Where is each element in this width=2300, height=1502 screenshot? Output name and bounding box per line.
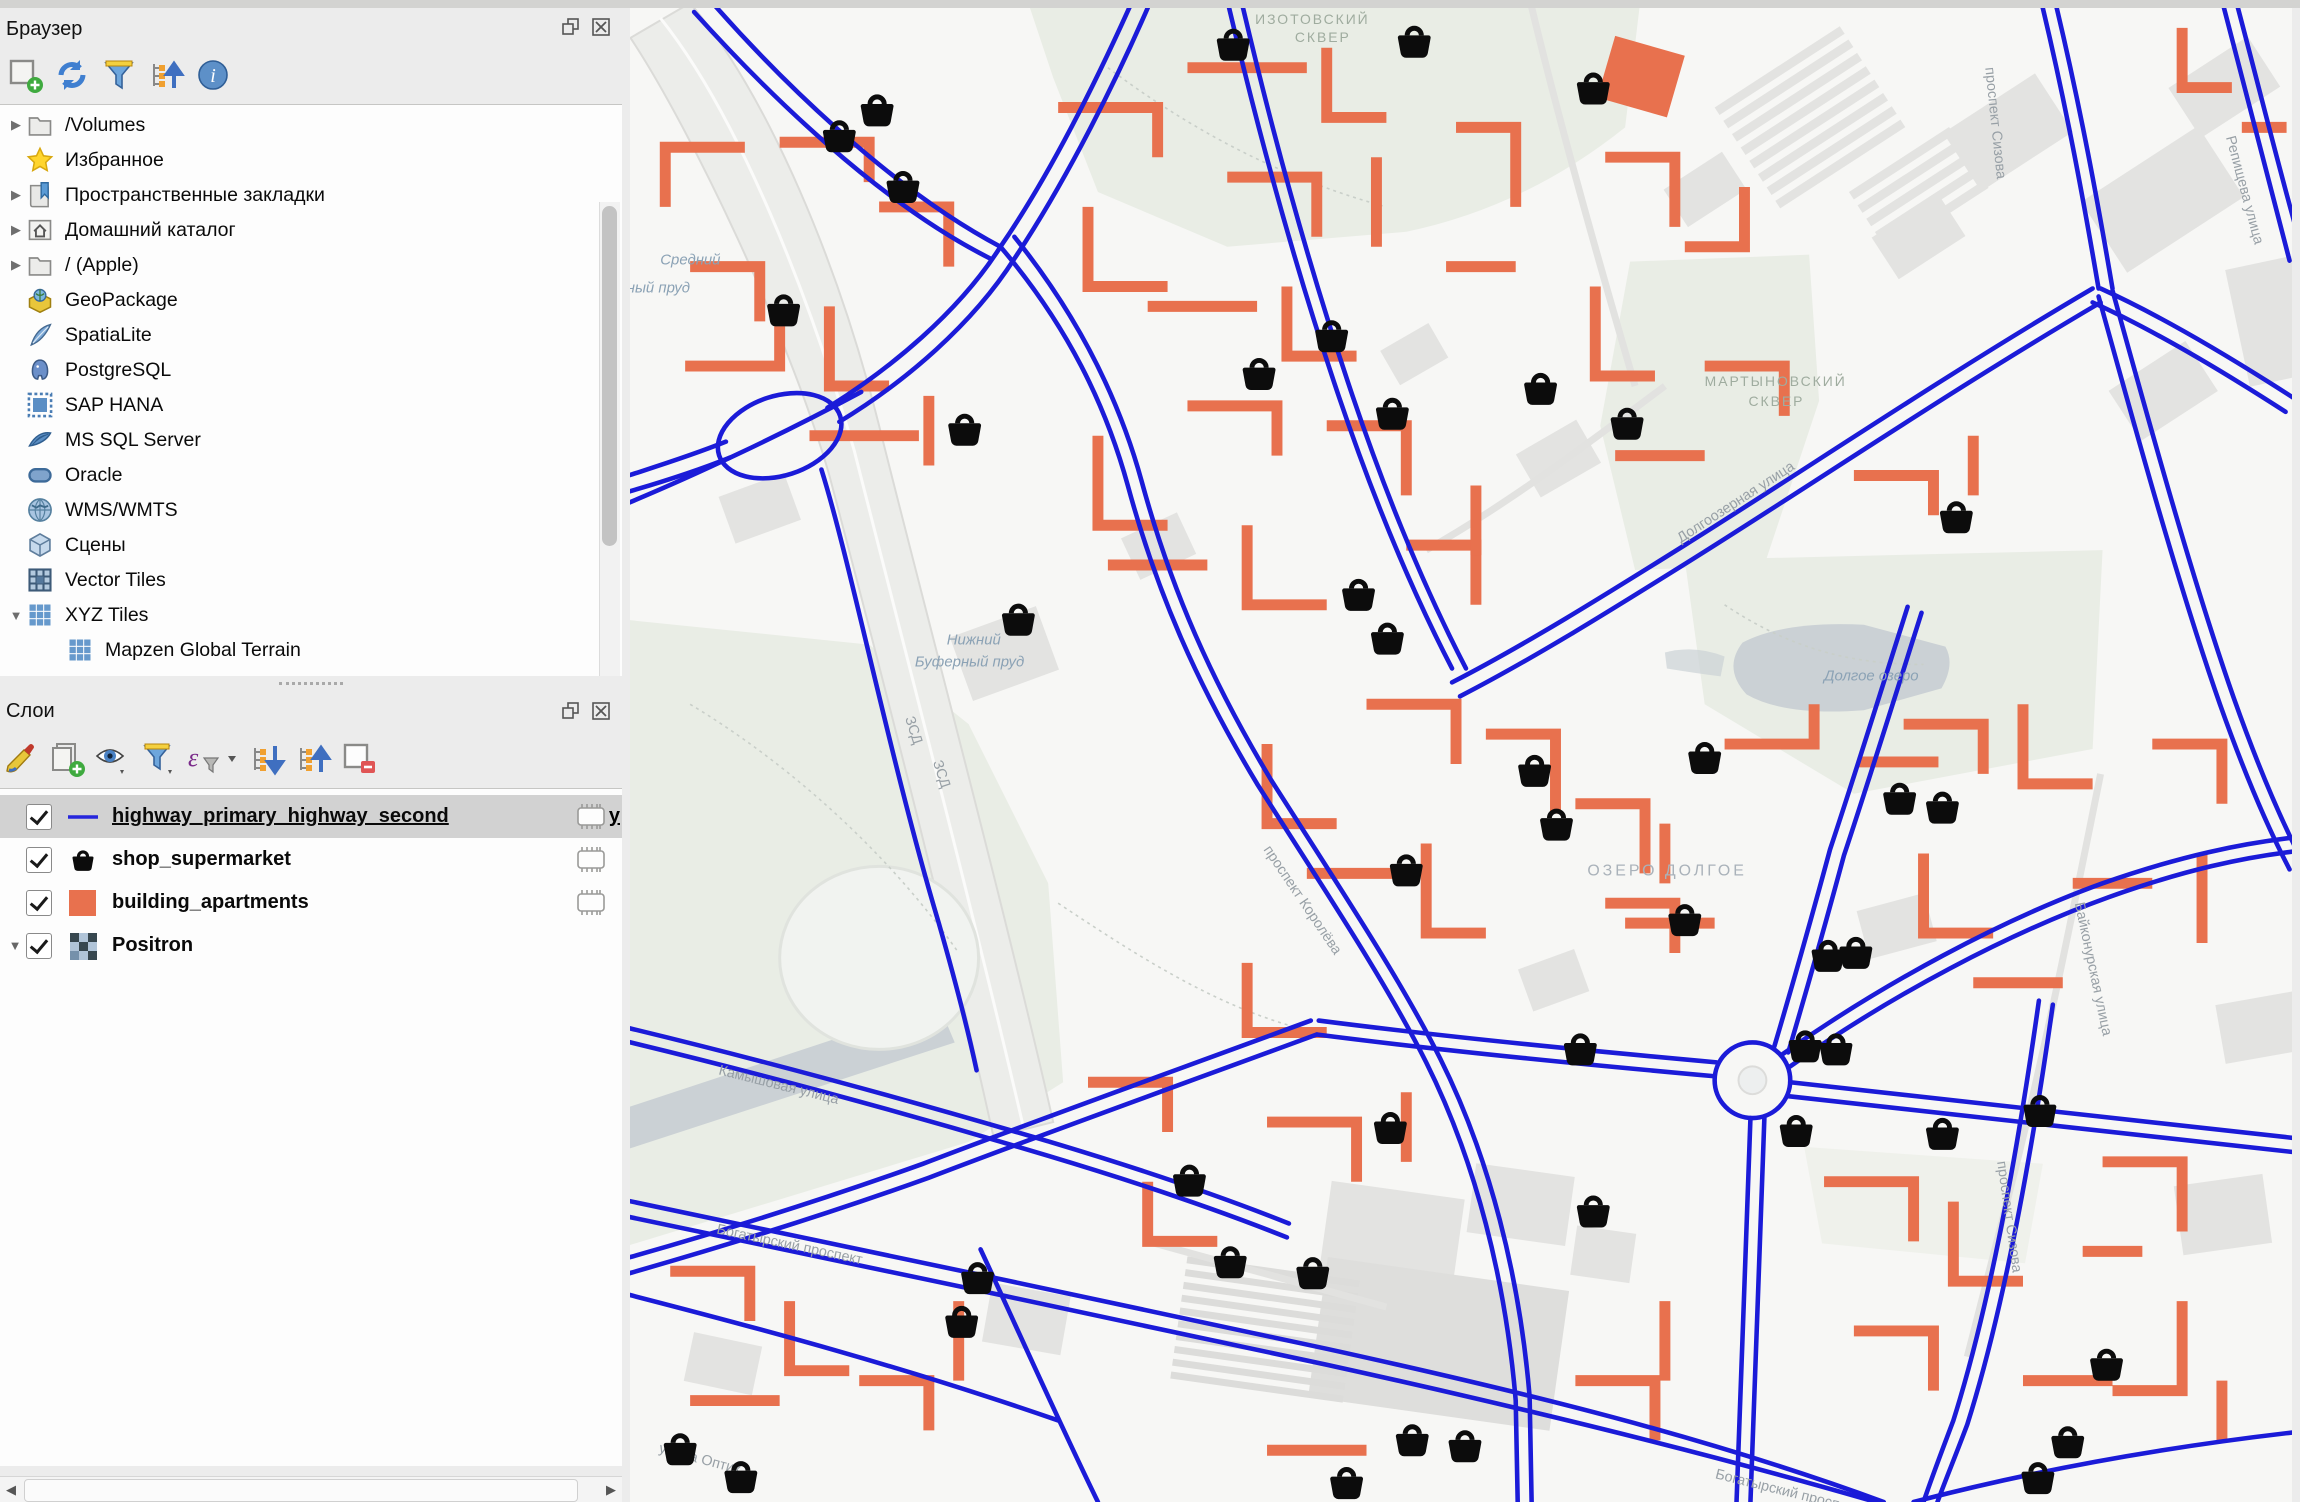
svg-text:ε: ε <box>188 743 199 772</box>
map-area: ИЗОТОВСКИЙ СКВЕР Средний Буферный пруд М… <box>622 8 2300 1502</box>
browser-item-mapzen-global-terrain[interactable]: Mapzen Global Terrain <box>0 632 622 668</box>
layer-row-positron[interactable]: ▼ Positron <box>0 924 622 967</box>
browser-item-vector-tiles[interactable]: Vector Tiles <box>0 562 622 598</box>
postgresql-icon <box>26 356 54 384</box>
browser-item-favorites[interactable]: Избранное <box>0 142 622 178</box>
layer-row-highway[interactable]: highway_primary_highway_second y <box>0 795 622 838</box>
svg-text:СКВЕР: СКВЕР <box>1748 393 1804 409</box>
filter-icon[interactable] <box>100 56 138 94</box>
float-panel-icon[interactable] <box>560 16 582 38</box>
browser-item-geopackage[interactable]: GeoPackage <box>0 282 622 318</box>
browser-panel: Браузер i <box>0 8 622 676</box>
dock-panels: Браузер i <box>0 8 622 1502</box>
expander-icon[interactable]: ▶ <box>6 257 26 273</box>
layer-checkbox[interactable] <box>26 847 52 873</box>
eye-icon[interactable] <box>94 740 132 778</box>
memory-layer-indicator-icon[interactable] <box>574 889 608 916</box>
scroll-left-icon[interactable]: ◀ <box>0 1477 22 1502</box>
refresh-icon[interactable] <box>53 56 91 94</box>
fill-swatch <box>66 889 100 917</box>
svg-text:Буферный пруд: Буферный пруд <box>915 653 1024 670</box>
mssql-icon <box>26 426 54 454</box>
collapse-tree-icon[interactable] <box>294 740 332 778</box>
layers-panel: Слои ε <box>0 690 622 1484</box>
svg-text:Средний: Средний <box>660 252 720 269</box>
layer-row-shop-supermarket[interactable]: shop_supermarket <box>0 838 622 881</box>
svg-text:Нижний: Нижний <box>947 632 1001 649</box>
qgis-window: Браузер i <box>0 0 2300 1502</box>
sap-hana-icon <box>26 391 54 419</box>
layers-panel-title: Слои <box>6 700 55 723</box>
browser-item-mssql[interactable]: MS SQL Server <box>0 422 622 458</box>
scenes-icon <box>26 531 54 559</box>
layers-hscrollbar[interactable]: ◀ ▶ <box>0 1476 622 1502</box>
browser-item-volumes[interactable]: ▶ /Volumes <box>0 107 622 143</box>
expression-filter-icon[interactable]: ε <box>186 740 242 778</box>
scrollbar-thumb[interactable] <box>602 206 617 546</box>
raster-swatch <box>66 932 100 960</box>
svg-text:ОЗЕРО ДОЛГОЕ: ОЗЕРО ДОЛГОЕ <box>1587 862 1747 879</box>
expander-icon[interactable]: ▼ <box>6 608 26 623</box>
browser-item-oracle[interactable]: Oracle <box>0 457 622 493</box>
expander-icon[interactable]: ▼ <box>4 938 26 953</box>
scrollbar-thumb[interactable] <box>24 1479 578 1502</box>
browser-scrollbar[interactable]: ▼ <box>599 202 620 676</box>
browser-item-xyz-tiles[interactable]: ▼ XYZ Tiles <box>0 597 622 633</box>
browser-tree: ▶ /Volumes Избранное ▶ Пространственные … <box>0 105 622 676</box>
browser-item-root-apple[interactable]: ▶ / (Apple) <box>0 247 622 283</box>
expand-tree-icon[interactable] <box>248 740 286 778</box>
filter-icon[interactable] <box>140 740 178 778</box>
collapse-tree-icon[interactable] <box>147 56 185 94</box>
browser-item-spatial-bookmarks[interactable]: ▶ Пространственные закладки <box>0 177 622 213</box>
svg-text:ИЗОТОВСКИЙ: ИЗОТОВСКИЙ <box>1255 10 1370 27</box>
browser-item-spatialite[interactable]: SpatiaLite <box>0 317 622 353</box>
svg-text:Буферный пруд: Буферный пруд <box>630 279 690 296</box>
home-folder-icon <box>26 216 54 244</box>
browser-toolbar: i <box>0 48 622 105</box>
browser-panel-title: Браузер <box>6 18 82 41</box>
remove-layer-icon[interactable] <box>340 740 378 778</box>
browser-item-home[interactable]: ▶ Домашний каталог <box>0 212 622 248</box>
svg-text:Долгое озеро: Долгое озеро <box>1822 667 1919 684</box>
layer-checkbox[interactable] <box>26 933 52 959</box>
line-swatch <box>66 803 100 831</box>
svg-text:i: i <box>210 65 216 87</box>
close-panel-icon[interactable] <box>590 16 612 38</box>
add-group-icon[interactable] <box>48 740 86 778</box>
layers-toolbar: ε <box>0 732 622 789</box>
add-square-icon[interactable] <box>6 56 44 94</box>
roundabout-island <box>1739 1066 1767 1094</box>
svg-text:СКВЕР: СКВЕР <box>1295 29 1351 45</box>
star-icon <box>26 146 54 174</box>
folder-icon <box>26 251 54 279</box>
geopackage-icon <box>26 286 54 314</box>
basket-marker-swatch <box>66 846 100 874</box>
layer-checkbox[interactable] <box>26 890 52 916</box>
layers-list: highway_primary_highway_second y shop_su… <box>0 789 622 1166</box>
svg-text:МАРТЫНОВСКИЙ: МАРТЫНОВСКИЙ <box>1705 372 1847 389</box>
spatialite-icon <box>26 321 54 349</box>
layer-row-building-apartments[interactable]: building_apartments <box>0 881 622 924</box>
browser-item-scenes[interactable]: Сцены <box>0 527 622 563</box>
paintbrush-icon[interactable] <box>4 740 42 778</box>
browser-item-wms[interactable]: WMS/WMTS <box>0 492 622 528</box>
memory-layer-indicator-icon[interactable] <box>574 846 608 873</box>
expander-icon[interactable]: ▶ <box>6 117 26 133</box>
xyz-tiles-icon <box>26 601 54 629</box>
float-panel-icon[interactable] <box>560 700 582 722</box>
browser-item-sap-hana[interactable]: SAP HANA <box>0 387 622 423</box>
close-panel-icon[interactable] <box>590 700 612 722</box>
wms-icon <box>26 496 54 524</box>
info-icon[interactable]: i <box>194 56 232 94</box>
xyz-tiles-icon <box>66 636 94 664</box>
expander-icon[interactable]: ▶ <box>6 187 26 203</box>
memory-layer-indicator-icon[interactable] <box>574 803 608 830</box>
bookmarks-icon <box>26 181 54 209</box>
browser-item-postgresql[interactable]: PostgreSQL <box>0 352 622 388</box>
oracle-icon <box>26 461 54 489</box>
scroll-right-icon[interactable]: ▶ <box>600 1477 622 1502</box>
folder-icon <box>26 111 54 139</box>
panel-splitter[interactable] <box>0 676 622 690</box>
vector-tiles-icon <box>26 566 54 594</box>
expander-icon[interactable]: ▶ <box>6 222 26 238</box>
layer-checkbox[interactable] <box>26 804 52 830</box>
map-canvas[interactable]: ИЗОТОВСКИЙ СКВЕР Средний Буферный пруд М… <box>630 8 2300 1502</box>
